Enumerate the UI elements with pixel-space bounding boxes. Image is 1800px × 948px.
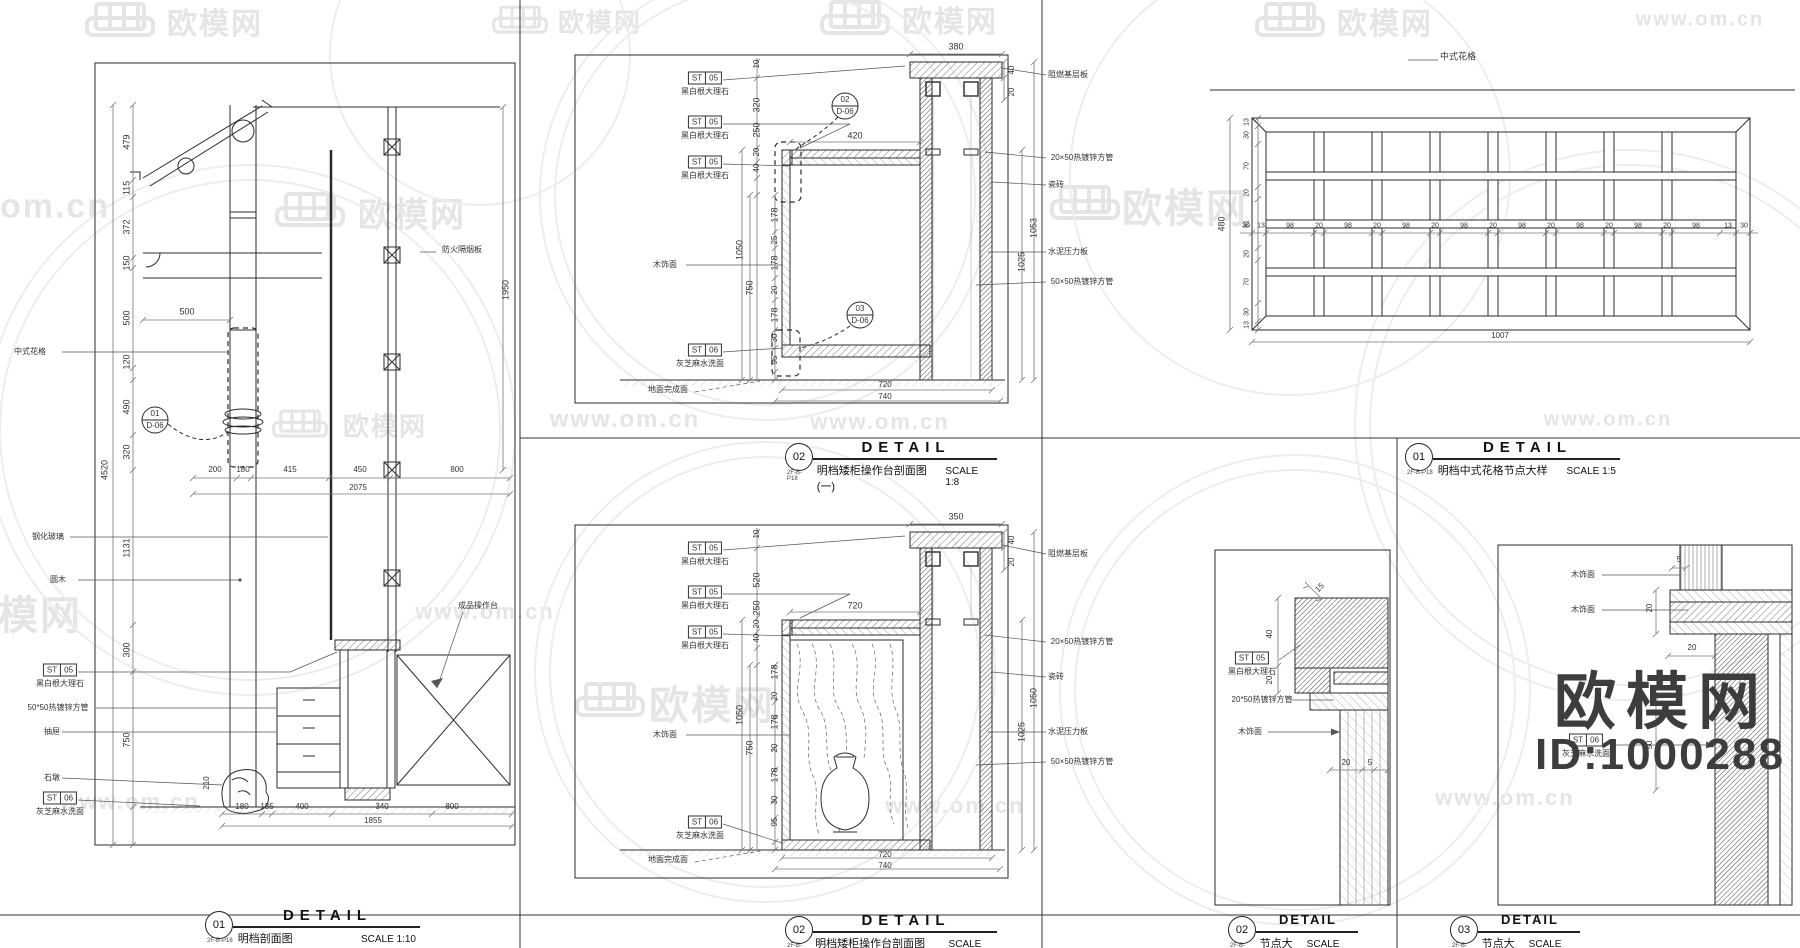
vase-outline [821, 753, 869, 830]
section-drawing [62, 63, 515, 848]
section-leaders [62, 252, 463, 806]
counter-section-2-drawing [575, 521, 1046, 878]
drawing-linework [0, 0, 1800, 948]
cad-sheet: 欧模网欧模网欧模网欧模网www.om.cnom.cn欧模网欧模网模网www.om… [0, 0, 1800, 948]
counter-section-1-drawing [575, 51, 1046, 404]
node-detail-02-drawing [1215, 550, 1391, 905]
node-detail-03-drawing [1498, 545, 1792, 905]
lattice-drawing [1210, 60, 1795, 345]
watermark-swirls [0, 0, 1800, 925]
section-dimensions [110, 102, 515, 848]
